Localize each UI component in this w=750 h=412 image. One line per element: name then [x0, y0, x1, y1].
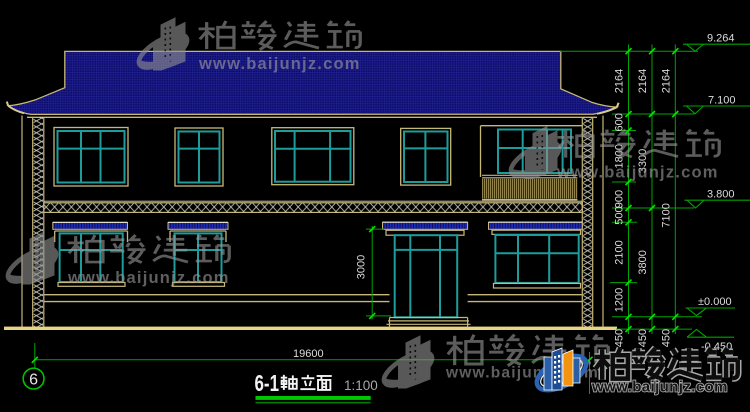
- svg-text:500: 500: [614, 206, 626, 224]
- svg-text:19600: 19600: [293, 348, 324, 360]
- svg-text:2164: 2164: [637, 69, 649, 93]
- svg-text:450: 450: [660, 329, 672, 347]
- svg-text:450: 450: [637, 329, 649, 347]
- svg-text:450: 450: [614, 329, 626, 347]
- svg-text:±0.000: ±0.000: [698, 296, 732, 308]
- svg-text:1200: 1200: [614, 288, 626, 312]
- svg-text:2164: 2164: [660, 69, 672, 93]
- svg-text:7.100: 7.100: [708, 95, 736, 107]
- svg-text:www.baijunjz.com: www.baijunjz.com: [591, 379, 728, 396]
- svg-text:www.baijunjz.com: www.baijunjz.com: [556, 164, 719, 182]
- svg-text:1:100: 1:100: [344, 378, 378, 393]
- svg-text:7100: 7100: [660, 203, 672, 227]
- svg-text:3.800: 3.800: [707, 189, 735, 201]
- svg-text:9.264: 9.264: [707, 33, 735, 45]
- svg-text:600: 600: [614, 113, 626, 131]
- svg-text:6-1: 6-1: [255, 370, 280, 396]
- svg-text:2100: 2100: [614, 240, 626, 264]
- svg-text:6: 6: [29, 372, 38, 389]
- svg-text:3800: 3800: [637, 250, 649, 274]
- svg-text:900: 900: [614, 190, 626, 208]
- svg-text:3000: 3000: [356, 255, 368, 279]
- svg-text:2164: 2164: [614, 69, 626, 93]
